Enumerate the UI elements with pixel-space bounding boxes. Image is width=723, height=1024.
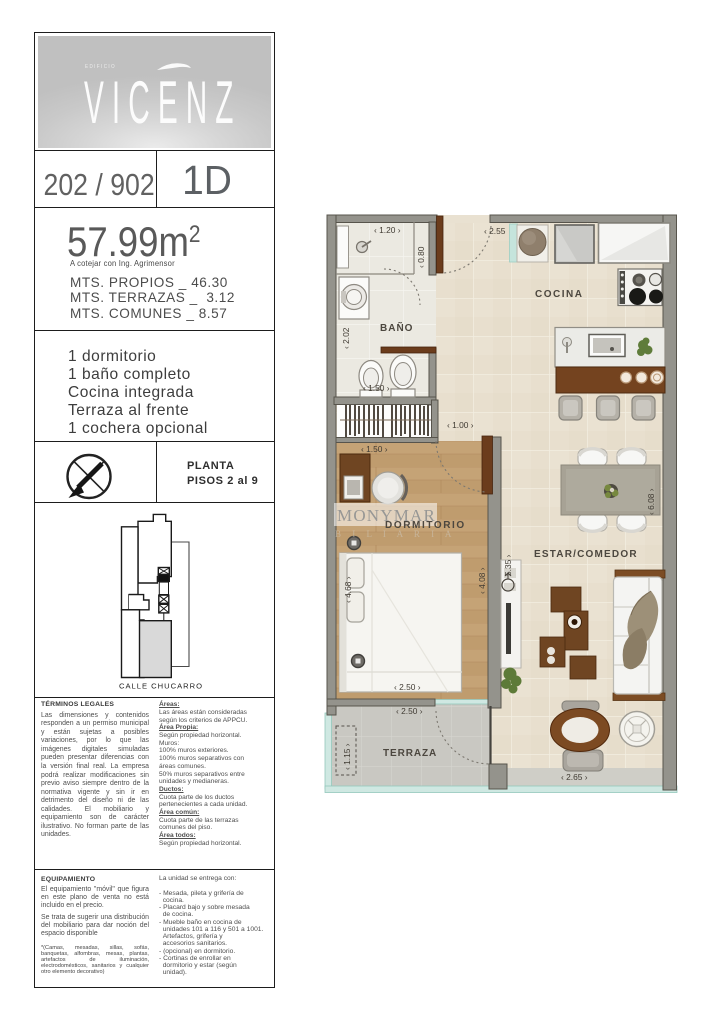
- svg-text:DORMITORIO: DORMITORIO: [385, 520, 466, 531]
- svg-text:‹ 6.08 ›: ‹ 6.08 ›: [646, 488, 656, 515]
- svg-text:COCINA: COCINA: [535, 289, 583, 300]
- svg-text:‹ 1.00 ›: ‹ 1.00 ›: [447, 420, 474, 430]
- svg-text:‹ 1.50 ›: ‹ 1.50 ›: [363, 383, 390, 393]
- svg-text:ESTAR/COMEDOR: ESTAR/COMEDOR: [534, 549, 638, 560]
- svg-text:‹ 4.08 ›: ‹ 4.08 ›: [477, 567, 487, 594]
- svg-text:‹ 2.55: ‹ 2.55: [484, 226, 506, 236]
- svg-text:‹ 1.50 ›: ‹ 1.50 ›: [361, 444, 388, 454]
- svg-text:‹ 2.65 ›: ‹ 2.65 ›: [561, 772, 588, 782]
- svg-text:‹ 1.15 ›: ‹ 1.15 ›: [342, 743, 352, 770]
- svg-text:BAÑO: BAÑO: [380, 321, 413, 334]
- svg-text:TERRAZA: TERRAZA: [383, 748, 437, 759]
- svg-text:‹ 2.50 ›: ‹ 2.50 ›: [394, 682, 421, 692]
- svg-text:CALLE CHUCARRO: CALLE CHUCARRO: [119, 682, 203, 691]
- svg-text:‹ 4.68 ›: ‹ 4.68 ›: [343, 576, 353, 603]
- svg-text:‹ 0.80: ‹ 0.80: [416, 246, 426, 268]
- svg-text:‹ 1.20 ›: ‹ 1.20 ›: [374, 225, 401, 235]
- svg-text:‹ 2.50 ›: ‹ 2.50 ›: [396, 706, 423, 716]
- svg-text:‹ 2.02: ‹ 2.02: [341, 327, 351, 349]
